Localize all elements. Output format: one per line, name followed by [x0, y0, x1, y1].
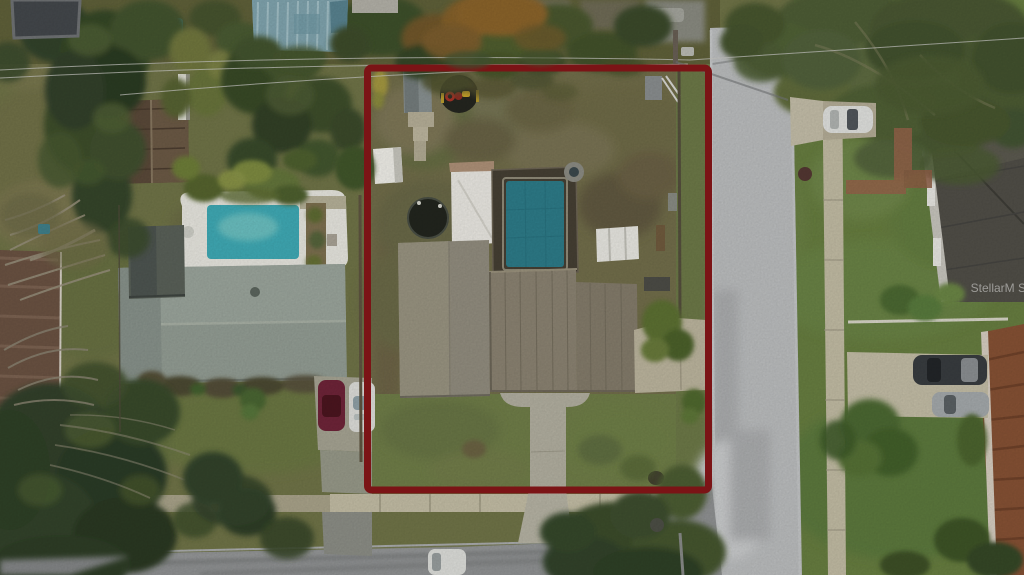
svg-text:StellarM S: StellarM S: [971, 281, 1024, 295]
